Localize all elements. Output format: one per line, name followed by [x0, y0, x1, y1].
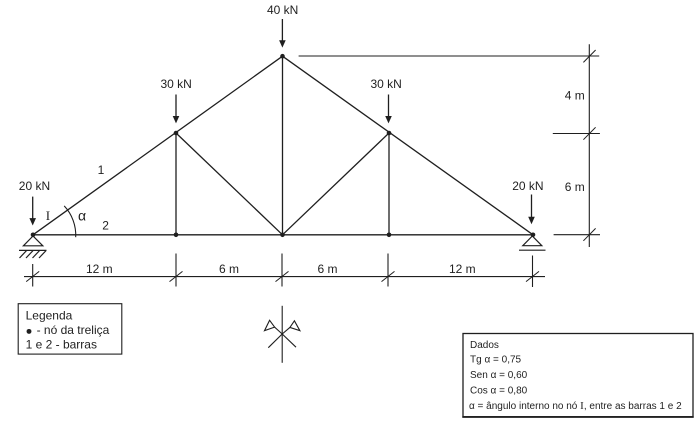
svg-text:12 m: 12 m [449, 262, 476, 276]
svg-text:6 m: 6 m [219, 262, 239, 276]
svg-text:Tg α = 0,75: Tg α = 0,75 [470, 355, 522, 366]
svg-text:6 m: 6 m [565, 180, 585, 194]
svg-text:20 kN: 20 kN [512, 179, 543, 193]
svg-text:30 kN: 30 kN [371, 77, 402, 91]
svg-text:2: 2 [102, 219, 109, 233]
svg-text:4 m: 4 m [565, 88, 585, 102]
svg-text:Legenda: Legenda [26, 309, 73, 323]
svg-text:40 kN: 40 kN [267, 3, 298, 17]
svg-text:α: α [78, 208, 86, 224]
svg-text:12 m: 12 m [86, 262, 113, 276]
svg-text:- nó da treliça: - nó da treliça [37, 323, 110, 337]
svg-text:Sen α = 0,60: Sen α = 0,60 [470, 370, 528, 381]
svg-text:30 kN: 30 kN [161, 77, 192, 91]
svg-text:Dados: Dados [470, 340, 499, 351]
svg-text:1 e 2 - barras: 1 e 2 - barras [26, 337, 97, 351]
svg-text:6 m: 6 m [318, 262, 338, 276]
svg-text:α = ângulo interno no nó I, en: α = ângulo interno no nó I, entre as bar… [469, 400, 682, 412]
svg-text:20 kN: 20 kN [19, 179, 50, 193]
svg-text:1: 1 [98, 163, 105, 177]
svg-text:I: I [46, 208, 50, 223]
svg-text:Cos α = 0,80: Cos α = 0,80 [470, 386, 528, 397]
